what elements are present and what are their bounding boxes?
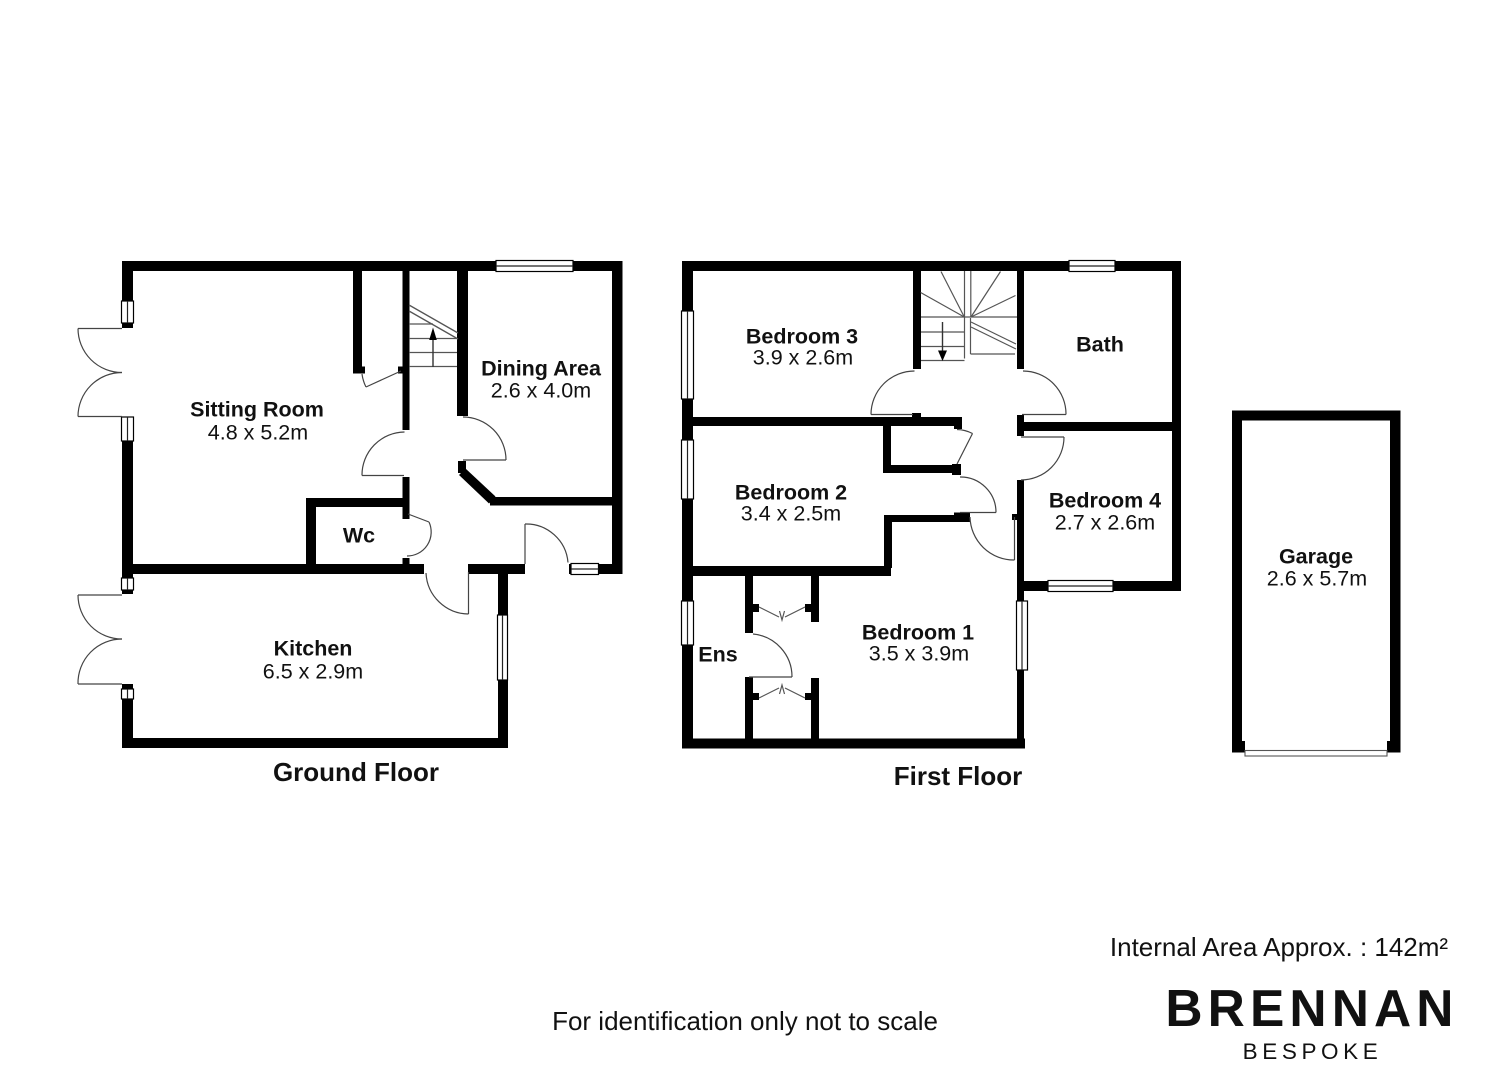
svg-text:6.5 x 2.9m: 6.5 x 2.9m xyxy=(263,660,363,684)
svg-text:Bath: Bath xyxy=(1076,333,1124,357)
svg-text:3.5 x 3.9m: 3.5 x 3.9m xyxy=(869,642,969,666)
svg-text:2.6 x 5.7m: 2.6 x 5.7m xyxy=(1267,567,1367,591)
svg-text:Internal Area Approx. : 142m²: Internal Area Approx. : 142m² xyxy=(1110,932,1449,962)
svg-text:Ground Floor: Ground Floor xyxy=(273,757,439,787)
svg-text:3.9 x 2.6m: 3.9 x 2.6m xyxy=(753,346,853,370)
svg-text:Garage: Garage xyxy=(1279,545,1353,569)
svg-text:Wc: Wc xyxy=(343,524,375,548)
svg-text:2.7 x 2.6m: 2.7 x 2.6m xyxy=(1055,511,1155,535)
svg-text:Kitchen: Kitchen xyxy=(274,637,353,661)
svg-text:2.6 x 4.0m: 2.6 x 4.0m xyxy=(491,379,591,403)
svg-text:Bedroom 4: Bedroom 4 xyxy=(1049,489,1161,513)
svg-text:4.8 x 5.2m: 4.8 x 5.2m xyxy=(208,421,308,445)
svg-text:Dining Area: Dining Area xyxy=(481,357,602,381)
svg-text:BESPOKE: BESPOKE xyxy=(1243,1039,1383,1064)
svg-text:First Floor: First Floor xyxy=(894,761,1023,791)
svg-text:3.4 x 2.5m: 3.4 x 2.5m xyxy=(741,502,841,526)
svg-text:Sitting Room: Sitting Room xyxy=(190,398,324,422)
svg-text:BRENNAN: BRENNAN xyxy=(1165,979,1458,1037)
svg-text:For identification only not to: For identification only not to scale xyxy=(552,1006,938,1036)
svg-text:Ens: Ens xyxy=(698,643,737,667)
